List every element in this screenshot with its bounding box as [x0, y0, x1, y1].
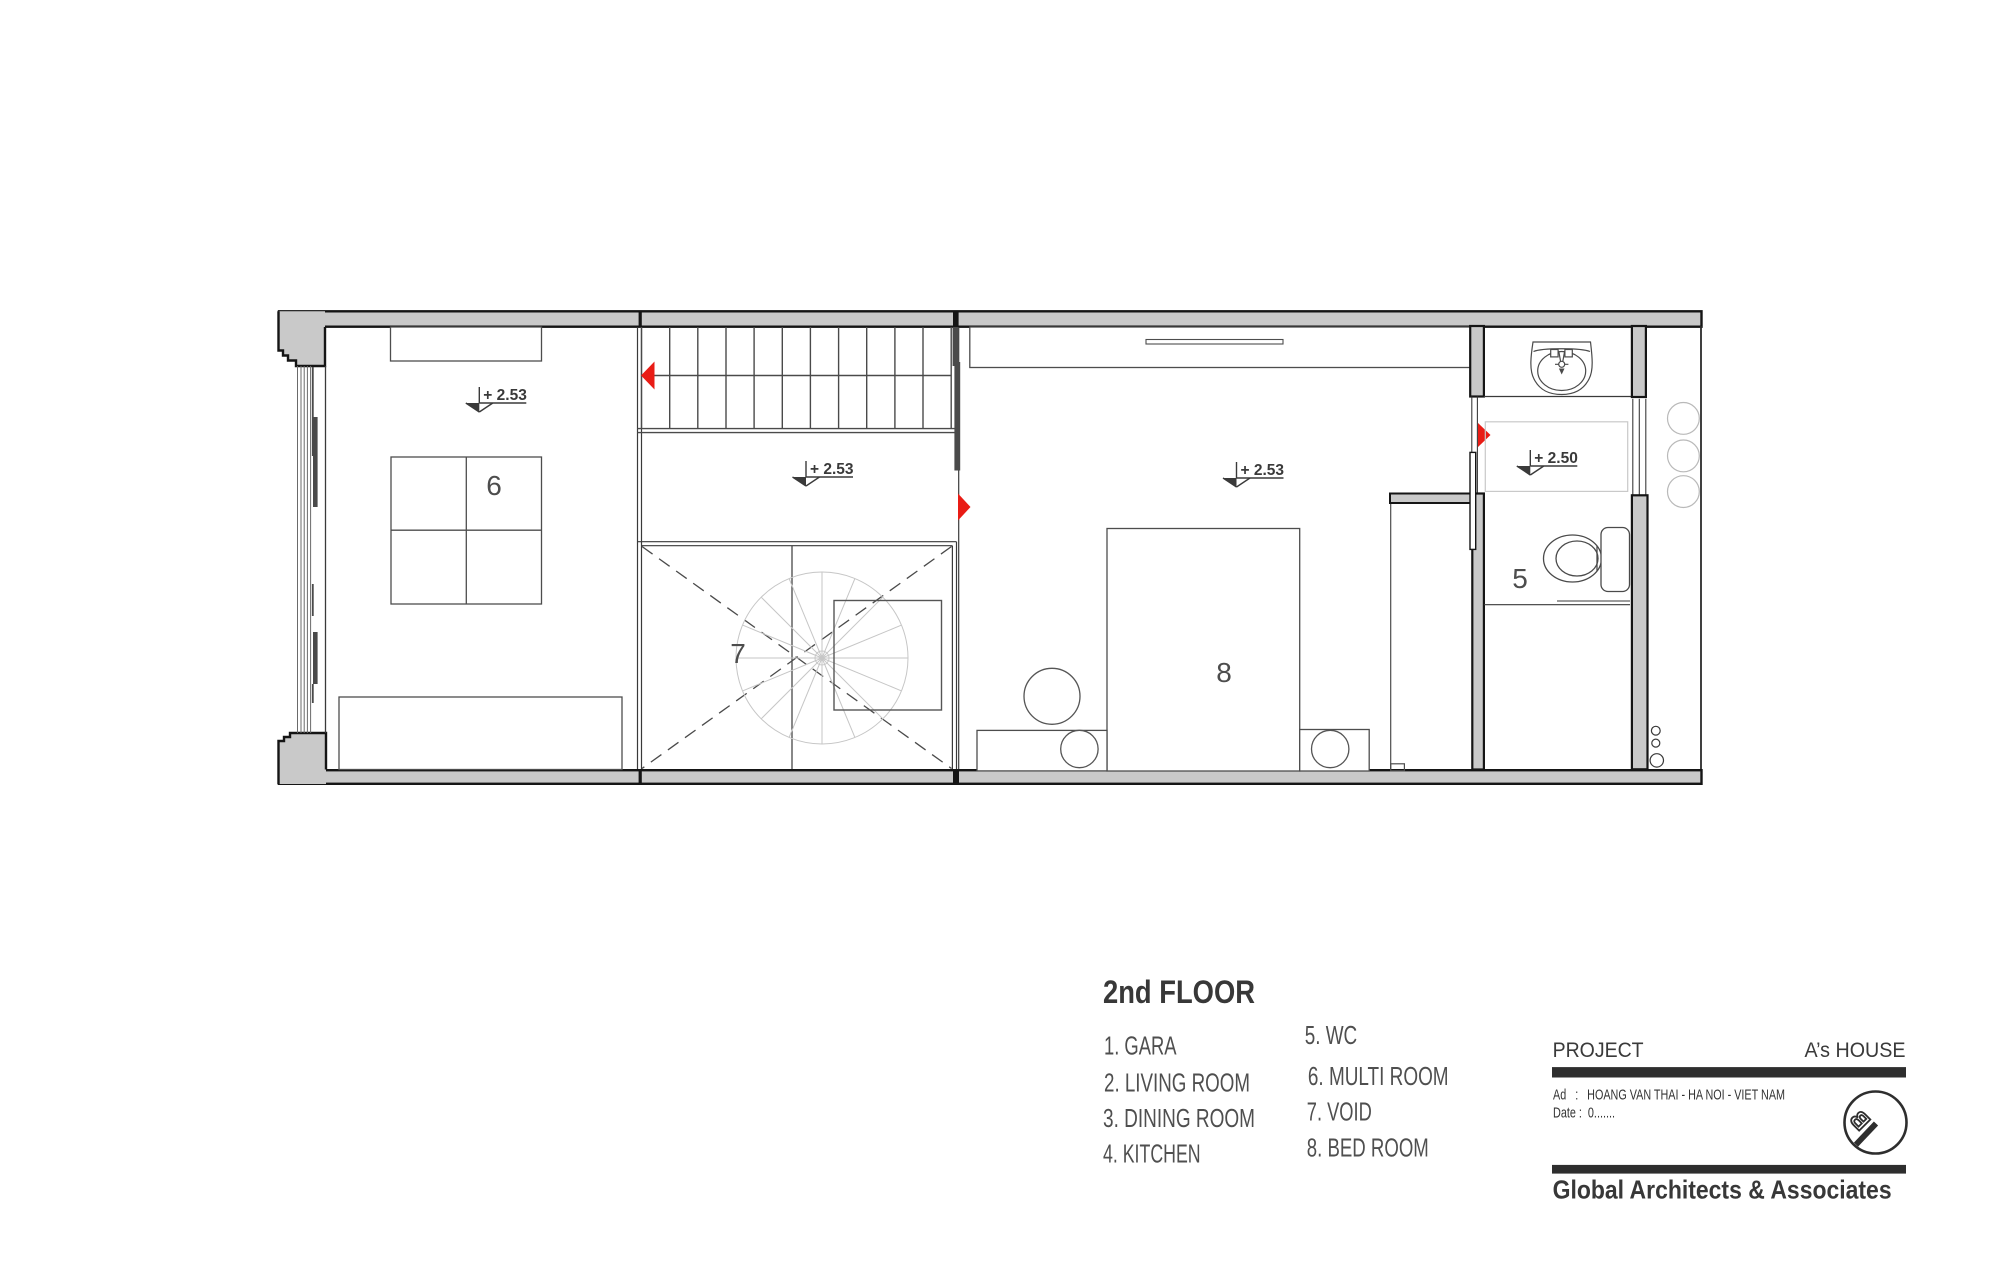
svg-text:2. LIVING ROOM: 2. LIVING ROOM	[1104, 1069, 1250, 1097]
svg-text:PROJECT: PROJECT	[1553, 1038, 1644, 1062]
svg-text:A’s HOUSE: A’s HOUSE	[1805, 1038, 1906, 1062]
svg-text:+ 2.53: + 2.53	[810, 461, 854, 478]
svg-text:2nd FLOOR: 2nd FLOOR	[1103, 974, 1255, 1010]
svg-text:+ 2.53: + 2.53	[483, 387, 527, 404]
svg-text:5: 5	[1512, 563, 1528, 594]
svg-text:6. MULTI ROOM: 6. MULTI ROOM	[1308, 1063, 1449, 1091]
svg-text:+ 2.50: + 2.50	[1534, 450, 1578, 467]
svg-text:8. BED ROOM: 8. BED ROOM	[1307, 1134, 1429, 1162]
svg-text:+ 2.53: + 2.53	[1241, 462, 1285, 479]
svg-text:4. KITCHEN: 4. KITCHEN	[1103, 1141, 1201, 1169]
svg-text:7: 7	[730, 638, 746, 669]
svg-text:1. GARA: 1. GARA	[1104, 1033, 1177, 1061]
svg-text:Ad : HOANG VAN THAI - HA N: Ad : HOANG VAN THAI - HA NOI - VIET NAM	[1553, 1087, 1785, 1103]
svg-text:Date : 0.......: Date : 0.......	[1553, 1106, 1615, 1122]
svg-text:3. DINING ROOM: 3. DINING ROOM	[1103, 1105, 1255, 1133]
svg-text:8: 8	[1216, 657, 1232, 688]
svg-text:5. WC: 5. WC	[1305, 1022, 1358, 1050]
svg-text:6: 6	[486, 470, 502, 501]
svg-text:Global Architects & Associates: Global Architects & Associates	[1553, 1175, 1892, 1205]
svg-text:7. VOID: 7. VOID	[1307, 1099, 1372, 1127]
